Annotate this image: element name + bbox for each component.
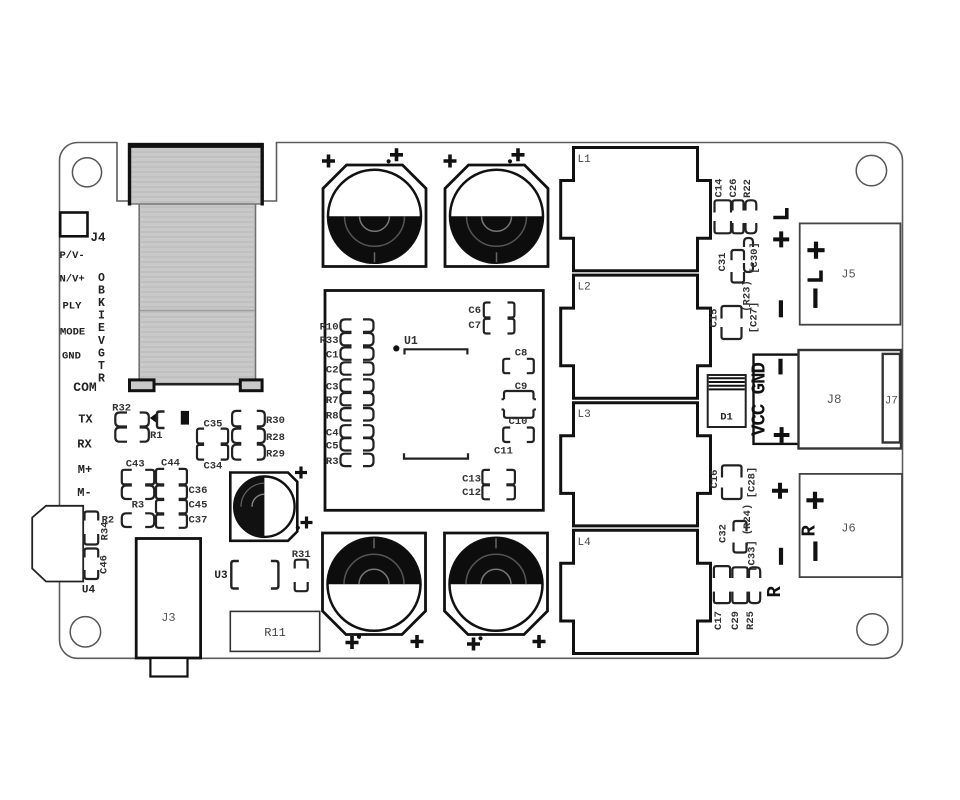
svg-text:COM: COM bbox=[73, 380, 97, 395]
svg-text:R3: R3 bbox=[132, 500, 145, 512]
svg-text:P/V-: P/V- bbox=[60, 250, 85, 262]
svg-text:D1: D1 bbox=[720, 412, 733, 424]
svg-text:C32: C32 bbox=[718, 524, 730, 543]
svg-text:MODE: MODE bbox=[60, 327, 85, 339]
svg-text:R25: R25 bbox=[745, 611, 757, 630]
svg-text:TX: TX bbox=[78, 413, 93, 427]
svg-text:R10: R10 bbox=[320, 322, 339, 334]
svg-text:R3: R3 bbox=[326, 456, 339, 468]
svg-text:L3: L3 bbox=[578, 409, 591, 421]
svg-text:K: K bbox=[98, 297, 105, 310]
svg-text:C44: C44 bbox=[161, 458, 180, 470]
svg-text:C31: C31 bbox=[717, 253, 729, 272]
svg-text:R1: R1 bbox=[150, 430, 163, 442]
svg-text:J6: J6 bbox=[841, 522, 855, 536]
svg-text:U3: U3 bbox=[214, 570, 228, 582]
svg-text:R33: R33 bbox=[320, 335, 339, 347]
svg-text:M-: M- bbox=[77, 486, 91, 500]
svg-text:J8: J8 bbox=[826, 393, 841, 407]
svg-text:C15: C15 bbox=[709, 309, 721, 328]
svg-text:R29: R29 bbox=[266, 449, 285, 461]
svg-text:R8: R8 bbox=[326, 410, 339, 422]
svg-text:C8: C8 bbox=[515, 348, 528, 360]
svg-text:U4: U4 bbox=[82, 585, 96, 597]
svg-text:V: V bbox=[98, 335, 105, 348]
svg-text:J3: J3 bbox=[161, 611, 175, 625]
svg-text:[C30]: [C30] bbox=[749, 242, 761, 274]
svg-text:C45: C45 bbox=[189, 499, 208, 511]
svg-text:VCC GND: VCC GND bbox=[749, 363, 771, 436]
svg-text:R: R bbox=[764, 586, 786, 598]
svg-text:J5: J5 bbox=[841, 268, 855, 282]
svg-text:R22: R22 bbox=[742, 179, 754, 198]
svg-text:C12: C12 bbox=[462, 487, 481, 499]
svg-text:C5: C5 bbox=[326, 440, 339, 452]
svg-text:C34: C34 bbox=[203, 461, 222, 473]
svg-text:(R24): (R24) bbox=[742, 504, 754, 536]
svg-text:R: R bbox=[799, 525, 821, 537]
svg-text:I: I bbox=[98, 310, 105, 323]
svg-text:C37: C37 bbox=[189, 515, 208, 527]
svg-text:U1: U1 bbox=[404, 335, 418, 348]
svg-text:C2: C2 bbox=[326, 365, 339, 377]
svg-text:R7: R7 bbox=[326, 395, 339, 407]
svg-text:C36: C36 bbox=[189, 485, 208, 497]
svg-text:C14: C14 bbox=[713, 179, 725, 198]
svg-text:R34: R34 bbox=[100, 522, 112, 541]
svg-text:C26: C26 bbox=[728, 179, 740, 198]
svg-text:C11: C11 bbox=[494, 446, 513, 458]
svg-text:C7: C7 bbox=[468, 320, 481, 332]
svg-text:C10: C10 bbox=[509, 416, 528, 428]
svg-text:C4: C4 bbox=[326, 427, 339, 439]
svg-text:C35: C35 bbox=[204, 419, 223, 431]
svg-text:C46: C46 bbox=[99, 555, 111, 574]
svg-text:C17: C17 bbox=[713, 611, 725, 630]
svg-text:R30: R30 bbox=[266, 415, 285, 427]
svg-text:R28: R28 bbox=[266, 432, 285, 444]
svg-text:N/V+: N/V+ bbox=[60, 274, 85, 286]
svg-text:T: T bbox=[98, 360, 105, 373]
svg-text:G: G bbox=[98, 347, 105, 360]
svg-text:GND: GND bbox=[62, 351, 81, 363]
svg-text:J7: J7 bbox=[885, 396, 898, 408]
svg-text:C6: C6 bbox=[468, 305, 481, 317]
svg-text:R: R bbox=[98, 372, 105, 385]
svg-text:O: O bbox=[98, 272, 105, 285]
svg-text:J4: J4 bbox=[91, 231, 107, 245]
svg-text:C16: C16 bbox=[709, 470, 721, 489]
svg-text:C1: C1 bbox=[326, 350, 339, 362]
svg-text:[C28]: [C28] bbox=[747, 467, 759, 499]
svg-text:M+: M+ bbox=[78, 463, 92, 477]
svg-text:B: B bbox=[98, 285, 105, 298]
svg-text:L2: L2 bbox=[578, 282, 591, 294]
svg-text:RX: RX bbox=[77, 437, 92, 451]
svg-text:R11: R11 bbox=[264, 626, 286, 640]
svg-text:E: E bbox=[98, 322, 105, 335]
svg-text:C13: C13 bbox=[462, 473, 481, 485]
svg-text:C29: C29 bbox=[730, 611, 742, 630]
svg-text:PLY: PLY bbox=[63, 301, 83, 313]
svg-text:[C27]: [C27] bbox=[749, 302, 761, 334]
svg-text:C3: C3 bbox=[326, 382, 339, 394]
svg-text:L4: L4 bbox=[578, 537, 592, 549]
svg-text:L1: L1 bbox=[578, 154, 592, 166]
